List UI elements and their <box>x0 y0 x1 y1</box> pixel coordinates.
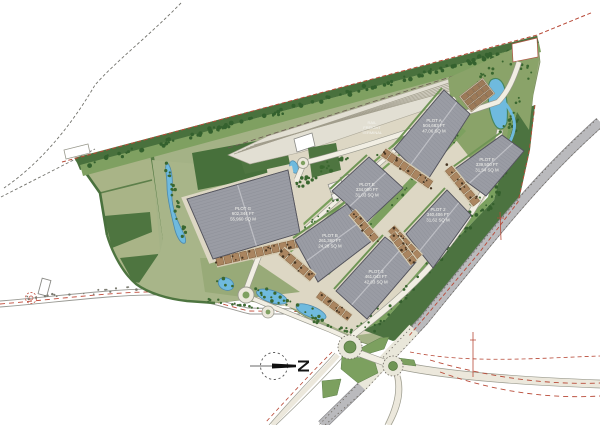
svg-text:24,28 SQ M: 24,28 SQ M <box>318 243 342 248</box>
svg-text:31,62 SQ M: 31,62 SQ M <box>426 217 450 222</box>
svg-text:31,03 SQ M: 31,03 SQ M <box>355 192 379 197</box>
svg-text:42,83 SQ M: 42,83 SQ M <box>364 279 388 284</box>
svg-text:55,960 SQ M: 55,960 SQ M <box>230 216 256 221</box>
svg-text:47,06 SQ M: 47,06 SQ M <box>422 128 446 133</box>
svg-text:TERMINAL: TERMINAL <box>362 130 383 135</box>
svg-text:31,54 SQ M: 31,54 SQ M <box>475 167 499 172</box>
